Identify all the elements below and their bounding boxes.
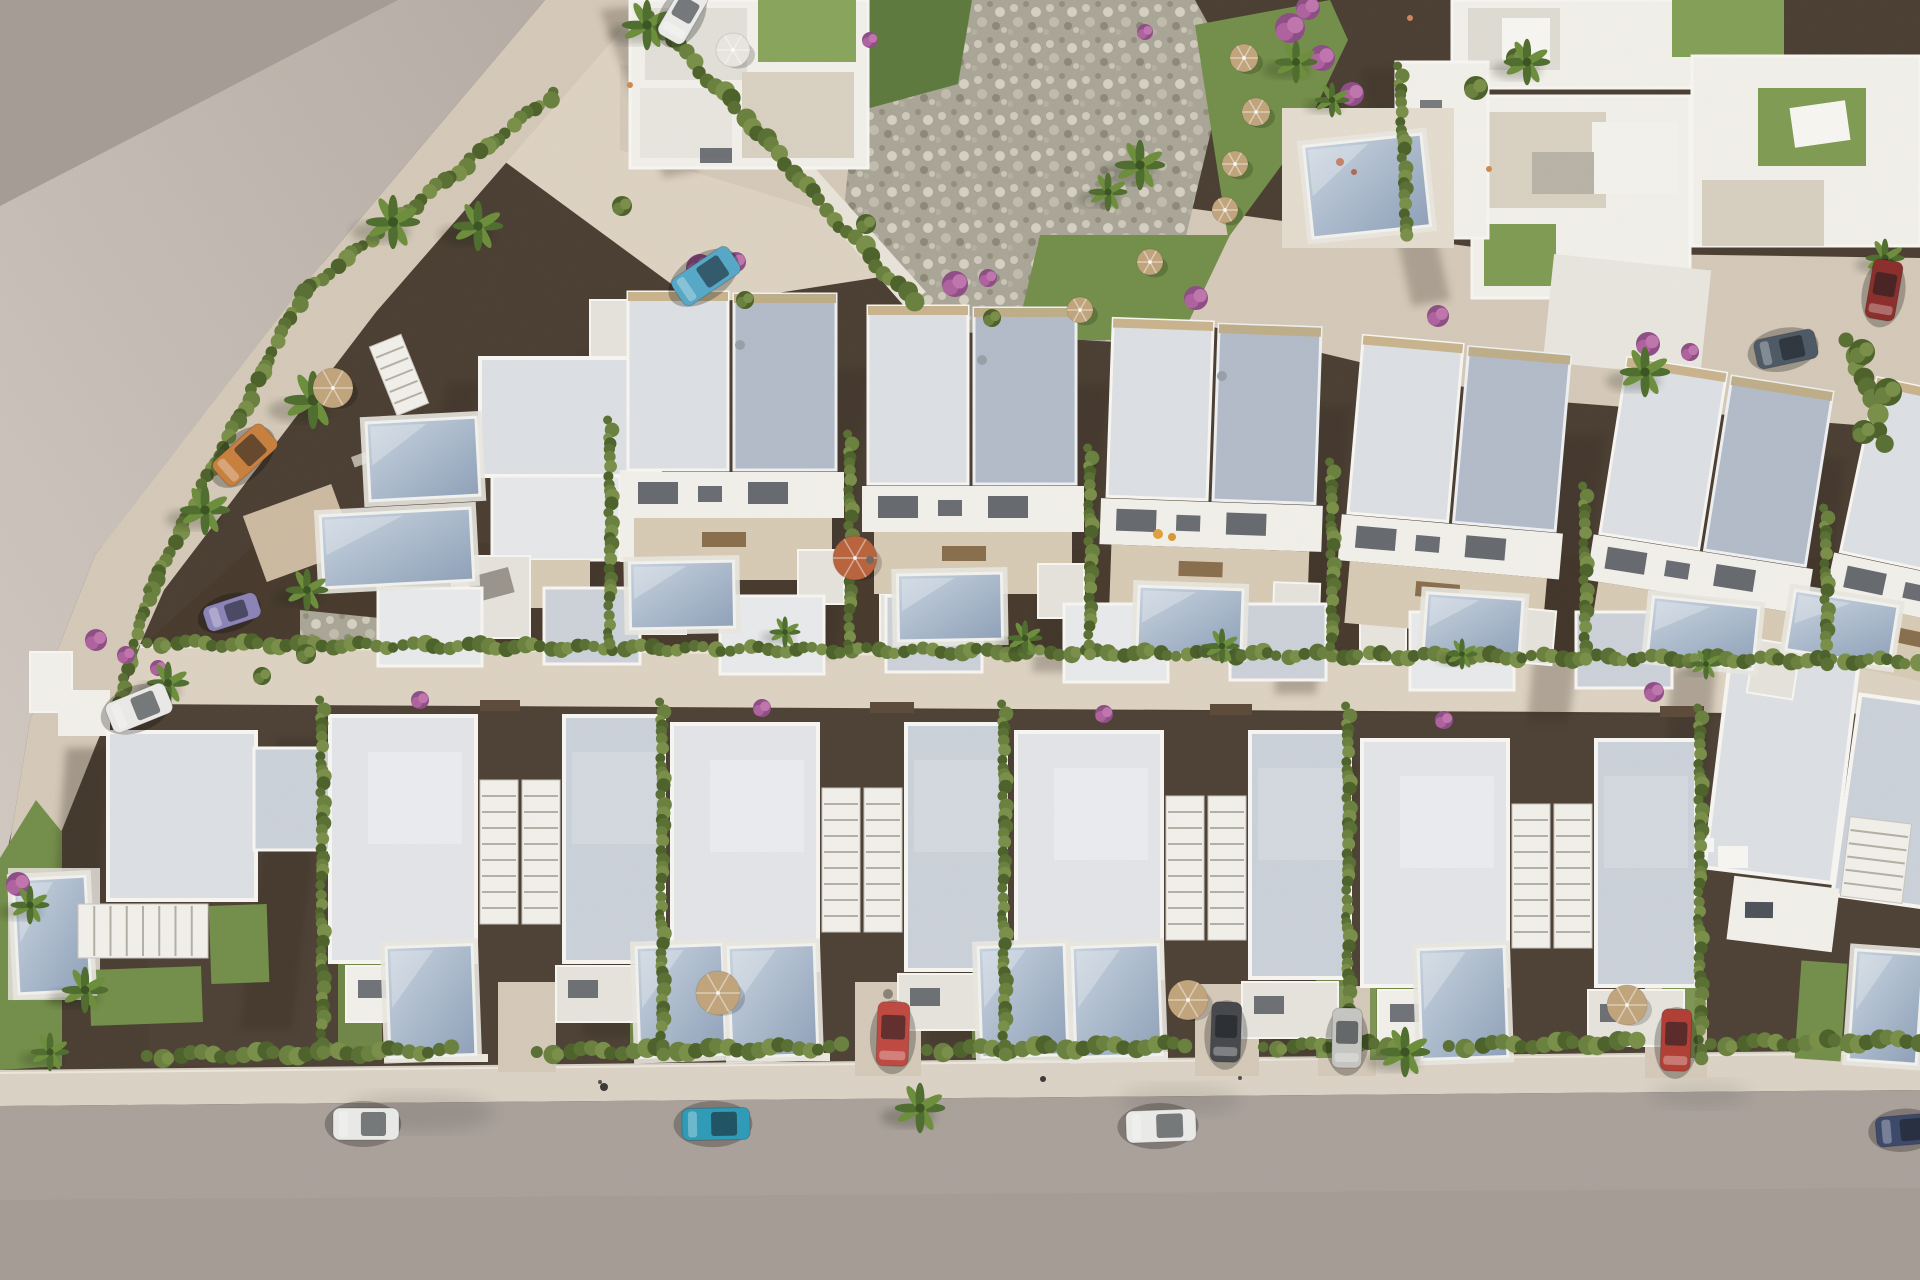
scene-svg [0,0,1920,1280]
film-grain-overlay [0,0,1920,1280]
aerial-render-image: Aerial 3D render of a white-villa reside… [0,0,1920,1280]
page: { "meta": { "caption": "Aerial 3D render… [0,0,1920,1280]
